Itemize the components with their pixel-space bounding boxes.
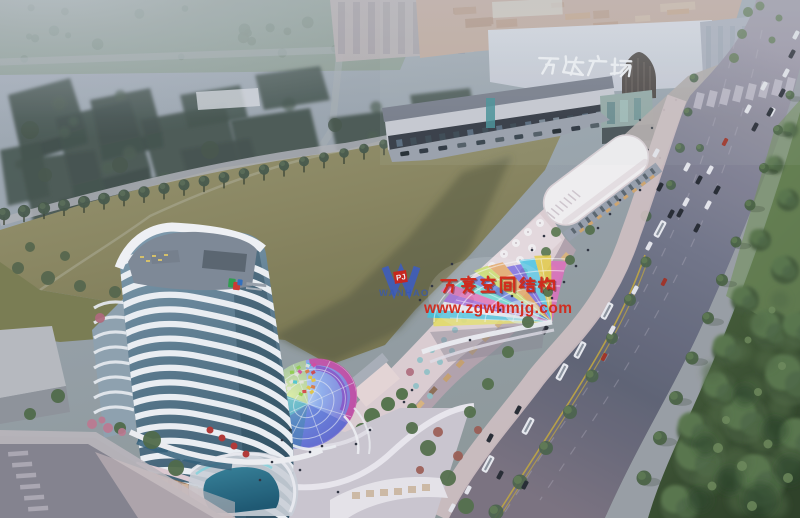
svg-text:PJ: PJ — [395, 272, 406, 282]
svg-text:www.zgwhmjg.com: www.zgwhmjg.com — [423, 300, 572, 317]
svg-text:WANHAO: WANHAO — [379, 288, 429, 299]
